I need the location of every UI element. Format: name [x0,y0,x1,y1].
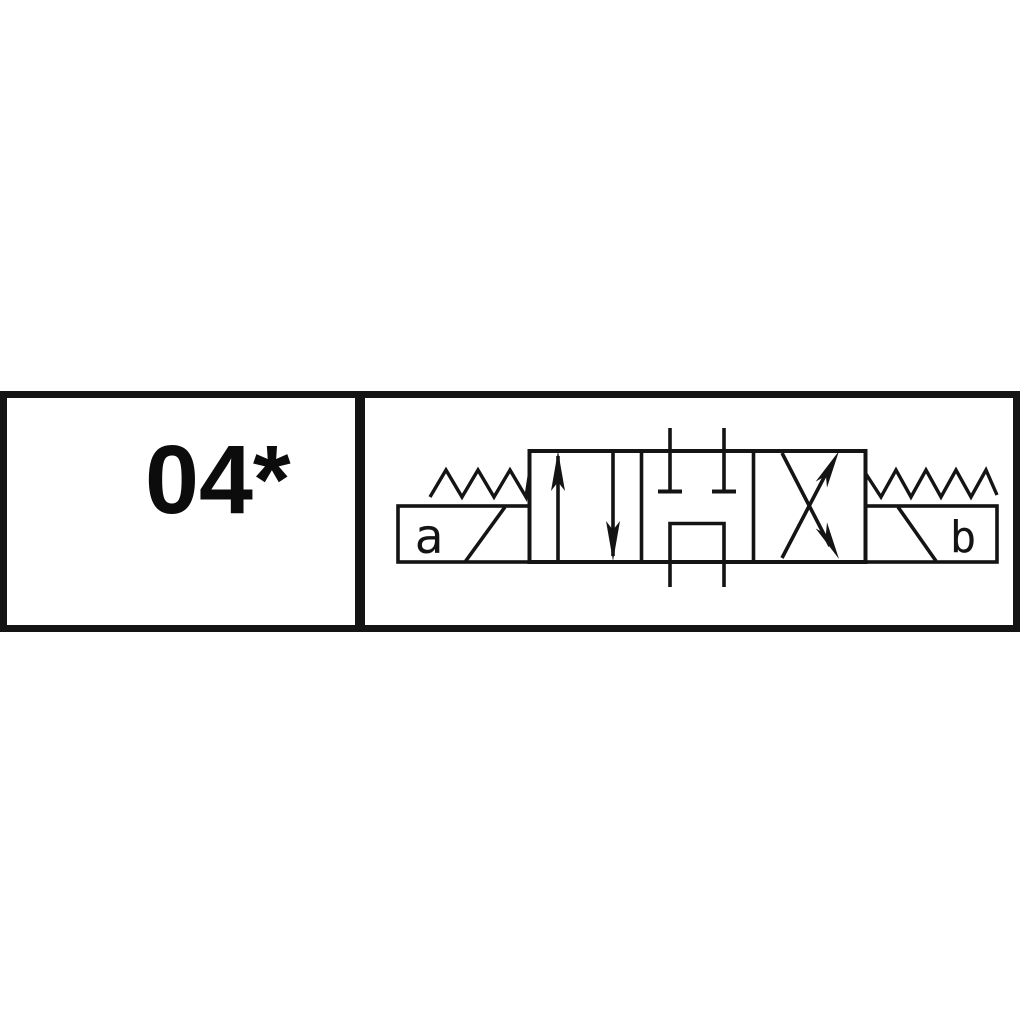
spring-left-icon [430,470,530,497]
catalog-page: 04* [0,0,1024,1024]
valve-body [530,451,866,562]
cross-arrow-up-head [816,451,839,488]
solenoid-b-slash [898,507,936,561]
cross-arrow-up-shaft [782,466,830,558]
cross-arrow-down-shaft [782,453,830,546]
valve-symbol: a b [0,0,1024,1024]
spring-right-icon [866,470,997,497]
solenoid-b-label: b [950,512,977,563]
solenoid-a-label: a [415,509,444,565]
pt-bridge [670,524,724,588]
solenoid-a-slash [465,507,505,562]
